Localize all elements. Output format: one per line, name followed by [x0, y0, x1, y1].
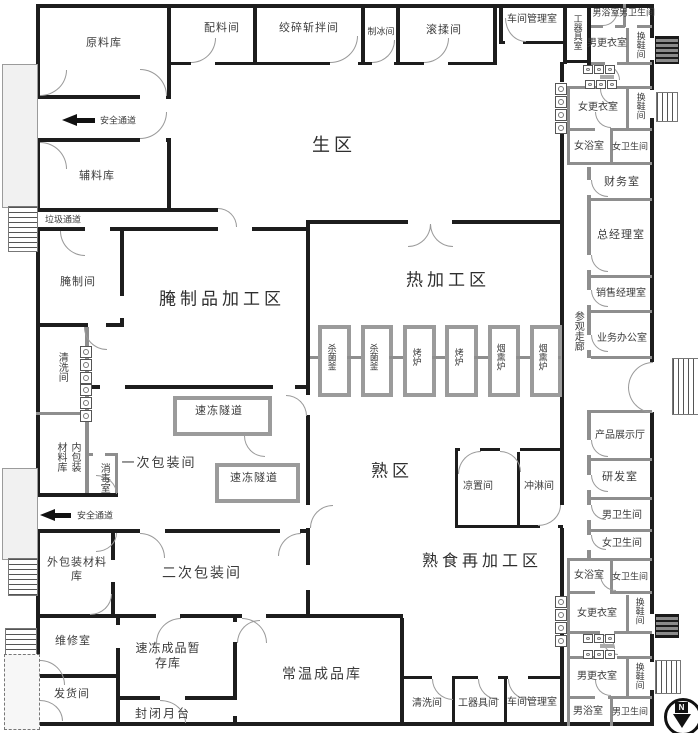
room-label-grinding-chopping-room: 绞碎斩拌间: [279, 22, 339, 36]
hand-wash-sinks: [583, 634, 615, 643]
zone-label-cured-processing: 腌制品加工区: [159, 288, 285, 309]
room-label-enclosed-platform: 封闭月台: [135, 707, 191, 722]
equipment-label-sterilizer: 杀菌釜: [367, 344, 378, 371]
door-arc: [278, 533, 301, 556]
door-arc: [40, 142, 67, 169]
wall: [591, 356, 652, 359]
sink-icon: [555, 635, 567, 647]
equipment-label-oven: 烤炉: [410, 348, 421, 366]
wall: [520, 448, 563, 451]
wall: [587, 520, 591, 535]
room-label-shoe-change: 换鞋间: [634, 32, 645, 59]
stairs: [655, 614, 679, 638]
door-arc: [191, 38, 216, 63]
sink-icon: [555, 109, 567, 121]
loading-dock-mid-left: [2, 468, 38, 560]
wall: [587, 458, 652, 461]
room-label-washing-room: 清洗间: [412, 698, 442, 711]
wall: [110, 227, 218, 231]
stairs: [655, 660, 681, 694]
door-arc: [286, 395, 307, 416]
door-arc: [424, 38, 449, 63]
wall: [396, 4, 400, 64]
room-label-frozen-goods-store: 速冻成品暂存库: [135, 641, 201, 671]
wall: [233, 642, 237, 700]
equipment-label-smoker: 烟熏炉: [494, 344, 505, 371]
wall: [300, 529, 310, 533]
door-arc: [218, 208, 237, 227]
wall: [626, 595, 629, 633]
room-label-inner-packaging-store: 内包装材料库: [53, 439, 81, 475]
wall: [85, 453, 93, 456]
room-label-aux-material-store: 辅料库: [79, 170, 115, 184]
door-arc: [538, 505, 561, 526]
room-label-curing-room: 腌制间: [60, 276, 96, 290]
room-label-womens-toilet: 女卫生间: [612, 141, 648, 152]
wall: [587, 270, 591, 290]
wall: [614, 631, 652, 634]
wall: [528, 676, 560, 679]
safety-passage-label: 安全通道: [77, 510, 113, 521]
wall: [615, 25, 625, 28]
wall: [115, 529, 140, 533]
door-arc: [458, 451, 481, 474]
sink-icon: [607, 80, 617, 89]
wall: [36, 228, 40, 497]
room-label-general-manager-office: 总经理室: [597, 229, 645, 243]
wall: [167, 142, 171, 212]
wall: [306, 222, 310, 395]
room-label-mens-bath: 男浴室: [592, 7, 619, 18]
sink-icon: [80, 372, 92, 384]
hand-wash-sinks: [555, 596, 567, 647]
wall: [608, 696, 652, 699]
room-label-disinfection-room: 消毒室: [97, 463, 110, 493]
bench: [600, 644, 614, 648]
wall: [563, 4, 567, 64]
wall: [125, 385, 273, 389]
wall: [455, 525, 540, 528]
sink-icon: [555, 622, 567, 634]
wall: [253, 4, 257, 64]
sink-icon: [555, 83, 567, 95]
wall: [626, 659, 629, 698]
door-arc: [40, 70, 67, 96]
door-arc: [140, 69, 167, 96]
wall: [36, 323, 88, 327]
wall: [120, 231, 124, 296]
wall: [591, 25, 603, 28]
equipment-label-oven: 烤炉: [452, 348, 463, 366]
zone-label-hot-processing: 热加工区: [406, 269, 490, 290]
room-label-mens-locker: 男更衣室: [577, 671, 617, 684]
wall: [166, 138, 171, 142]
wall: [567, 128, 595, 131]
door-arc: [595, 112, 611, 128]
door-arc: [372, 40, 395, 63]
sink-icon: [594, 650, 604, 659]
wall: [452, 220, 560, 224]
wall: [560, 62, 564, 82]
garbage-passage-label: 垃圾通道: [45, 214, 81, 225]
wall: [499, 4, 503, 44]
floor-plan: 安全通道 安全通道 垃圾通道 生区 腌制品加工区 热加工区 熟区 熟食再加工区 …: [0, 0, 698, 733]
room-label-tumbling-room: 滚揉间: [426, 24, 462, 38]
room-label-workshop-management-office: 车间管理室: [507, 697, 557, 710]
room-label-mens-locker: 男更衣室: [587, 38, 627, 51]
wall: [591, 275, 652, 278]
sink-icon: [585, 80, 595, 89]
wall: [36, 4, 654, 8]
wall: [358, 62, 372, 65]
wall: [637, 25, 652, 28]
hand-wash-sinks: [585, 80, 617, 89]
wall: [167, 4, 171, 99]
wall: [310, 356, 318, 359]
room-label-mens-toilet: 男卫生间: [619, 7, 655, 18]
sink-icon: [583, 650, 593, 659]
stairs: [655, 36, 679, 64]
zone-label-visitor-corridor: 参观走廊: [571, 311, 584, 351]
room-label-shoe-change: 换鞋间: [633, 598, 644, 625]
wall: [306, 415, 310, 505]
wall: [567, 696, 595, 699]
room-label-sales-manager-office: 销售经理室: [596, 288, 646, 301]
room-label-ingredient-room: 配料间: [204, 22, 240, 36]
north-compass: N: [664, 698, 698, 733]
hand-wash-sinks: [583, 650, 615, 659]
sink-icon: [605, 65, 615, 74]
wall: [626, 89, 629, 129]
equipment-label-smoker: 烟熏炉: [536, 344, 547, 371]
sink-icon: [583, 65, 593, 74]
safety-passage-label: 安全通道: [100, 115, 136, 126]
sink-icon: [594, 65, 604, 74]
wall: [361, 4, 365, 64]
wall: [432, 356, 445, 359]
wall: [36, 95, 140, 99]
room-label-ice-making-room: 制冰间: [367, 26, 394, 37]
wall: [116, 618, 120, 625]
room-label-womens-bath: 女浴室: [574, 141, 604, 154]
sink-icon: [555, 596, 567, 608]
wall: [474, 356, 488, 359]
wall: [587, 529, 652, 532]
wall: [610, 591, 652, 594]
room-label-rnd-office: 研发室: [602, 471, 638, 485]
room-label-womens-bath: 女浴室: [574, 570, 604, 583]
sink-icon: [555, 122, 567, 134]
wall: [587, 167, 591, 180]
room-label-washing-room: 清洗间: [55, 352, 68, 382]
zone-label-secondary-packaging: 二次包装间: [162, 565, 242, 583]
room-label-raw-material-store: 原料库: [86, 37, 122, 51]
sink-icon: [80, 346, 92, 358]
wall: [560, 528, 564, 598]
wall: [389, 356, 403, 359]
wall: [499, 41, 505, 44]
hand-wash-sinks: [555, 83, 567, 134]
sink-icon: [555, 609, 567, 621]
equipment-label-sterilizer: 杀菌釜: [325, 344, 336, 371]
sink-icon: [583, 634, 593, 643]
stairs: [8, 558, 38, 596]
compass-arrow-icon: [673, 714, 691, 728]
wall: [567, 162, 652, 165]
entrance-steps: [672, 358, 698, 415]
wall: [36, 614, 156, 618]
room-label-ambient-goods-store: 常温成品库: [282, 666, 362, 684]
wall: [615, 86, 652, 89]
stairs: [656, 92, 678, 122]
room-label-tool-room: 工器具室: [571, 14, 582, 50]
wall: [347, 356, 361, 359]
stairs: [5, 628, 37, 656]
wall: [516, 356, 530, 359]
wall: [394, 62, 424, 65]
sink-icon: [80, 384, 92, 396]
sink-icon: [80, 397, 92, 409]
room-label-maintenance-room: 维修室: [55, 635, 91, 649]
wall: [106, 323, 124, 327]
room-label-mens-toilet: 男卫生间: [602, 510, 642, 523]
compass-n-label: N: [675, 702, 688, 713]
room-label-outer-packaging-store: 外包装材料库: [46, 556, 108, 584]
zone-label-cooked-area: 熟区: [371, 460, 413, 481]
wall: [493, 4, 497, 64]
wall: [610, 128, 652, 131]
room-label-business-office: 业务办公室: [597, 333, 647, 346]
wall: [480, 448, 500, 451]
loading-dock-top-left: [2, 64, 38, 208]
door-arc: [330, 36, 358, 63]
wall: [266, 614, 403, 618]
room-label-freeze-tunnel: 速冻隧道: [195, 405, 243, 419]
sink-icon: [605, 634, 615, 643]
stairs: [8, 206, 38, 252]
room-label-finance-office: 财务室: [604, 176, 640, 190]
zone-label-raw-area: 生区: [312, 134, 356, 157]
wall: [306, 528, 310, 565]
wall: [567, 558, 570, 726]
door-arc: [140, 112, 167, 139]
door-arc: [140, 533, 165, 558]
door-arc: [591, 255, 608, 272]
door-arc: [90, 594, 112, 615]
zone-label-primary-packaging: 一次包装间: [121, 455, 196, 471]
safety-passage-arrow: [62, 114, 77, 126]
room-label-shower-room: 冲淋间: [524, 481, 554, 494]
room-label-mens-toilet: 男卫生间: [612, 706, 648, 717]
door-arc: [40, 660, 65, 685]
wall: [563, 60, 591, 63]
wall: [523, 41, 567, 44]
wall: [617, 656, 652, 659]
wall: [400, 676, 432, 679]
wall: [591, 198, 652, 201]
wall: [306, 590, 310, 614]
wall: [215, 62, 330, 65]
room-label-dispatch-room: 发货间: [54, 688, 90, 702]
door-arc: [156, 618, 181, 643]
zone-label-cooked-reprocessing: 熟食再加工区: [422, 552, 542, 572]
wall: [36, 138, 140, 142]
sink-icon: [80, 410, 92, 422]
wall: [587, 412, 591, 440]
wall: [116, 696, 160, 700]
sink-icon: [594, 634, 604, 643]
wall: [587, 497, 652, 500]
wall: [36, 208, 218, 212]
door-arc: [310, 505, 333, 528]
wall: [567, 86, 570, 165]
room-label-womens-toilet: 女卫生间: [602, 538, 642, 551]
wall: [558, 356, 561, 359]
door-arc: [244, 436, 265, 457]
room-label-womens-toilet: 女卫生间: [612, 571, 648, 582]
room-label-womens-locker: 女更衣室: [578, 102, 618, 115]
wall: [233, 618, 237, 622]
room-label-freeze-tunnel: 速冻隧道: [230, 472, 278, 486]
door-arc: [60, 231, 85, 256]
wall: [400, 618, 404, 726]
wall: [650, 118, 654, 362]
hand-wash-sinks: [80, 384, 92, 422]
sink-icon: [80, 359, 92, 371]
wall: [567, 591, 595, 594]
marking: [77, 118, 95, 123]
room-label-cooling-room: 凉置间: [463, 481, 493, 494]
wall: [116, 648, 120, 722]
room-label-shoe-change: 换鞋间: [633, 663, 644, 690]
room-label-shoe-change: 换鞋间: [634, 93, 645, 120]
door-arc: [430, 224, 453, 247]
hand-wash-sinks: [80, 346, 92, 384]
wall: [185, 696, 237, 700]
wall: [558, 525, 563, 528]
room-label-product-showroom: 产品展示厅: [595, 430, 645, 443]
sink-icon: [596, 80, 606, 89]
wall: [452, 676, 478, 679]
door-arc: [237, 620, 260, 643]
room-label-womens-locker: 女更衣室: [577, 608, 617, 621]
wall: [295, 385, 310, 389]
hand-wash-sinks: [583, 65, 615, 74]
door-arc: [628, 362, 653, 388]
wall: [306, 220, 408, 224]
room-label-mens-bath: 男浴室: [573, 706, 603, 719]
wall: [560, 634, 564, 726]
wall: [587, 195, 591, 255]
marking: [55, 513, 71, 518]
wall: [233, 716, 237, 726]
wall: [455, 448, 458, 528]
door-arc: [408, 224, 431, 247]
room-label-tool-room-b: 工器具间: [458, 698, 498, 711]
wall: [591, 310, 652, 313]
loading-dock-bottom-left: [4, 654, 40, 730]
wall: [252, 227, 306, 231]
wall: [111, 582, 115, 618]
wall: [448, 62, 497, 65]
sink-icon: [605, 650, 615, 659]
sink-icon: [555, 96, 567, 108]
bench: [600, 75, 614, 79]
wall: [165, 529, 280, 533]
safety-passage-arrow: [40, 509, 55, 521]
wall: [650, 412, 654, 614]
wall: [587, 4, 591, 66]
room-label-workshop-management-office: 车间管理室: [507, 14, 557, 27]
door-arc: [40, 700, 63, 721]
wall: [617, 62, 652, 65]
door-arc: [591, 440, 608, 457]
wall: [171, 62, 191, 65]
